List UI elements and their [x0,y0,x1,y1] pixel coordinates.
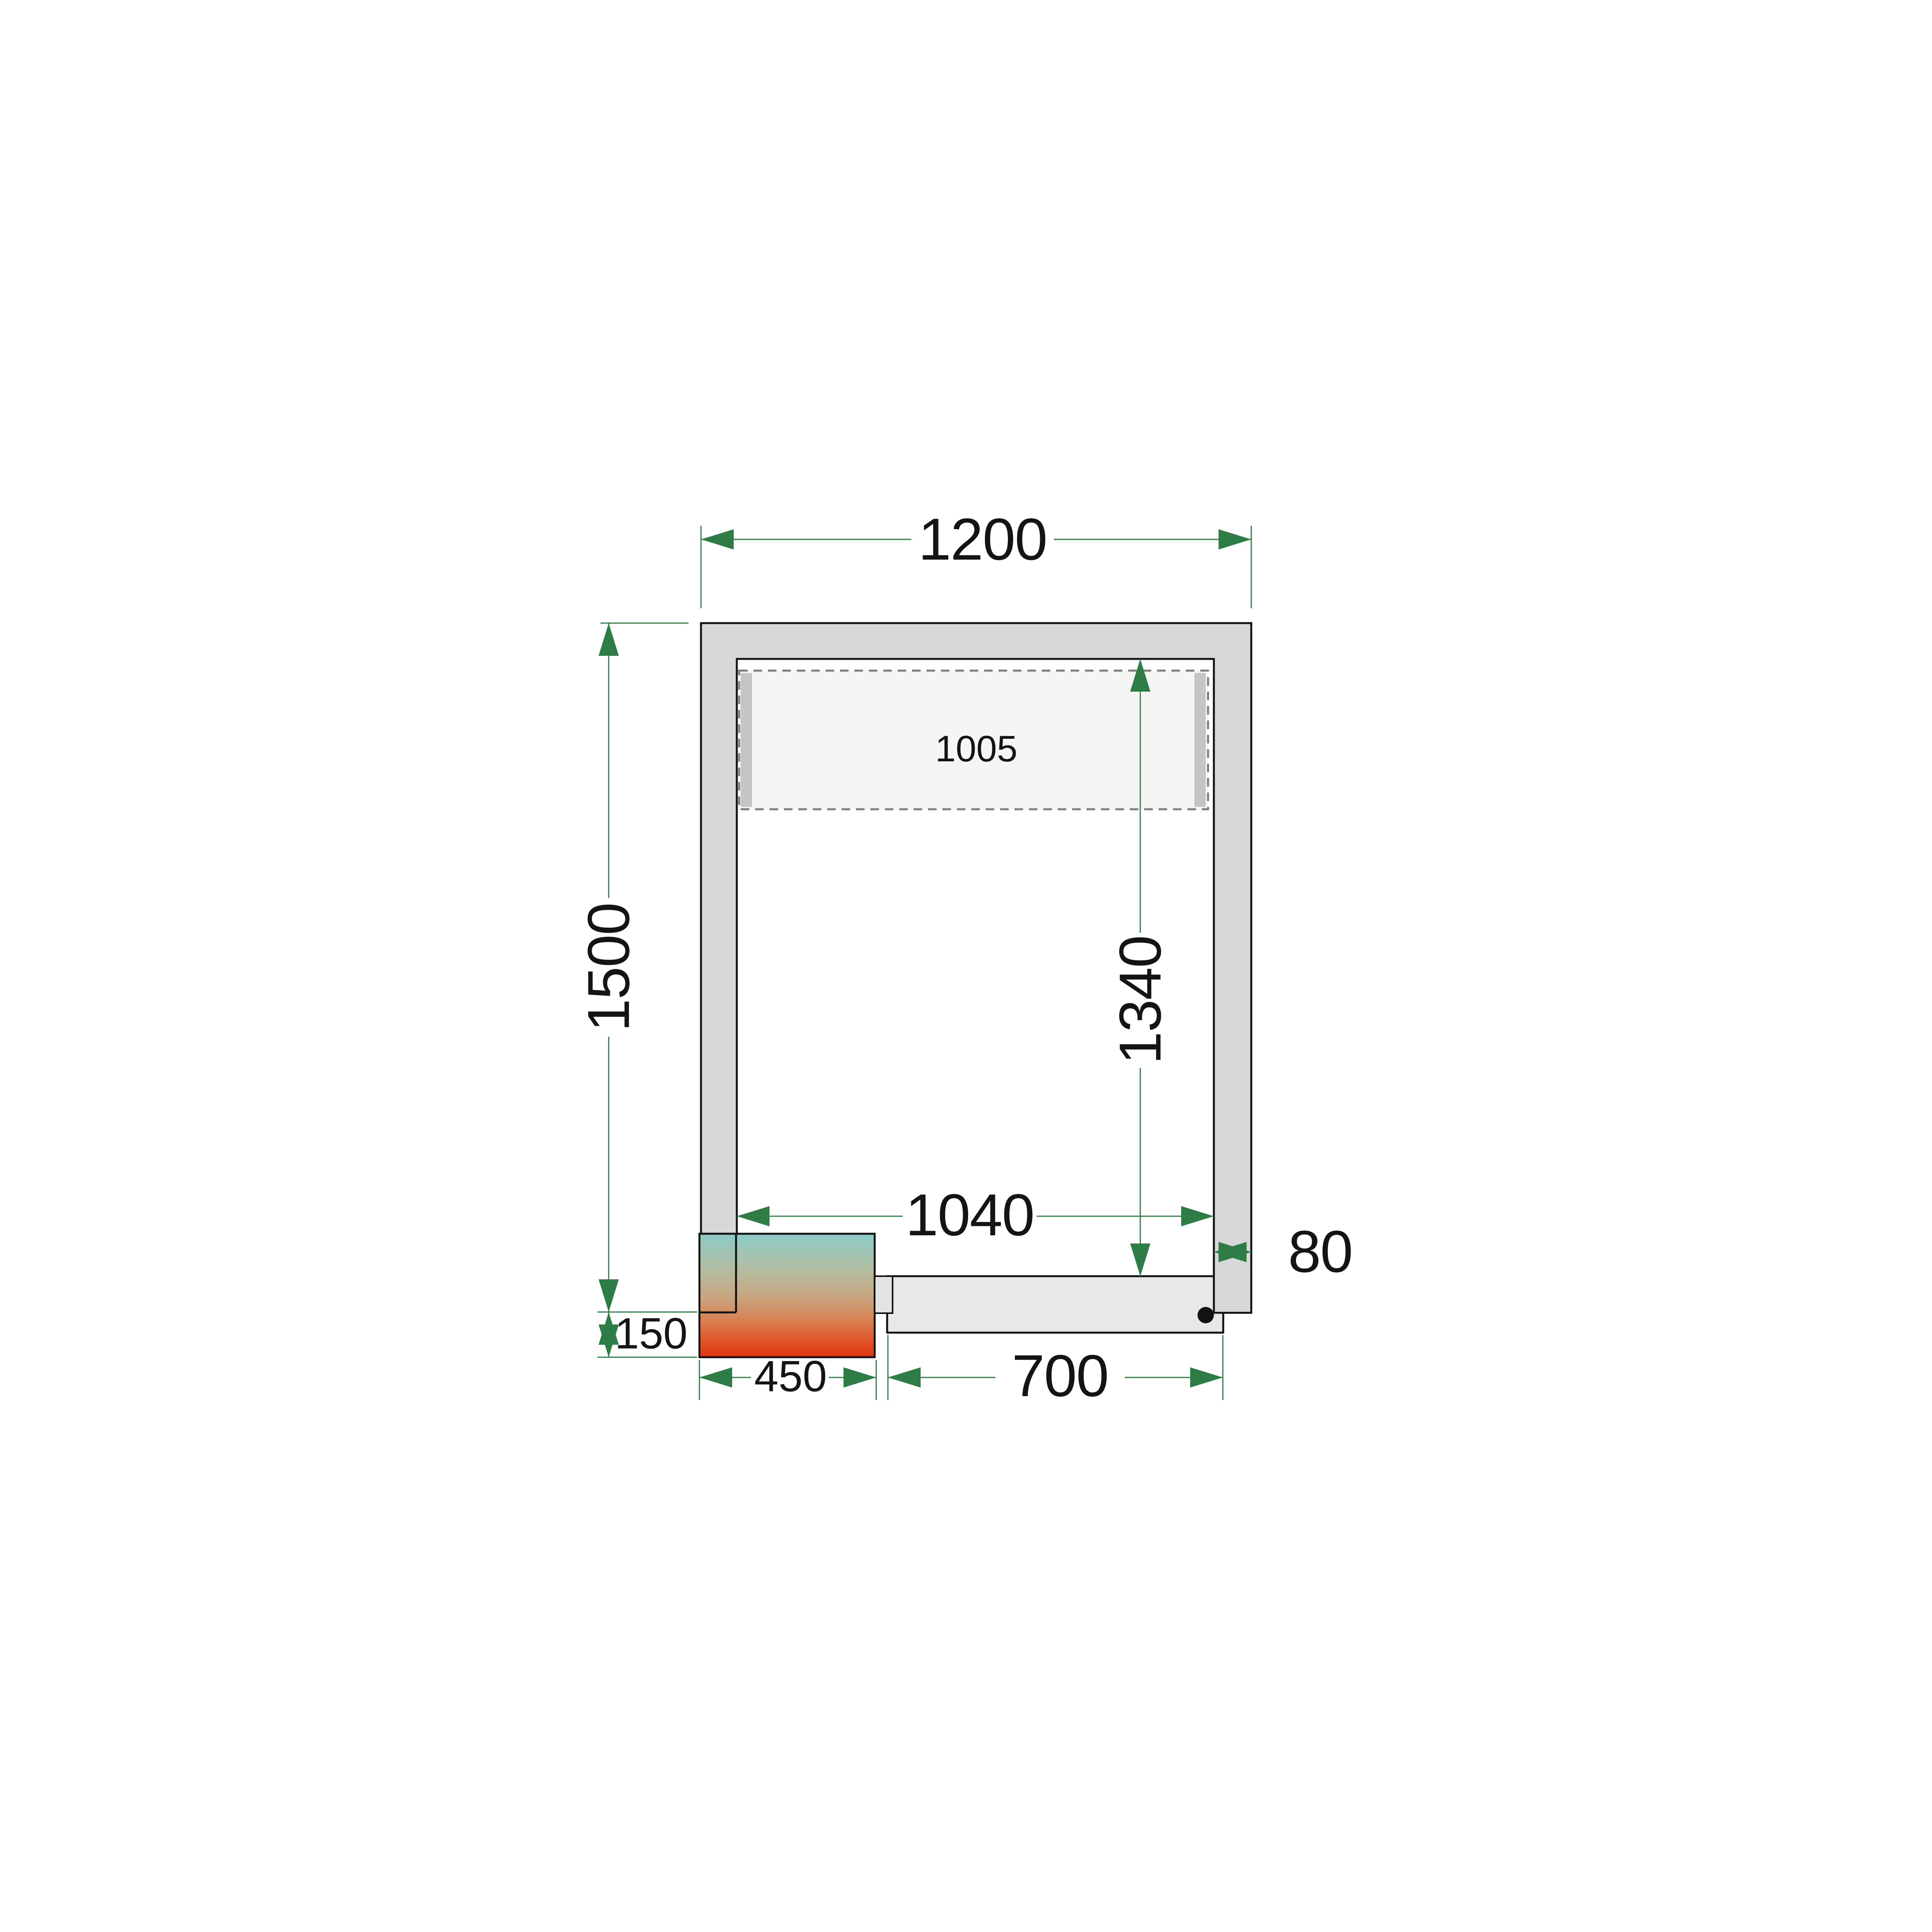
shelf-width-label: 1005 [935,728,1017,770]
door-width-label: 700 [1012,1343,1108,1409]
inner-width-label: 1040 [905,1182,1034,1248]
door-leaf [887,1276,1223,1333]
outer-width-label: 1200 [918,506,1047,572]
unit-width-label: 450 [754,1352,827,1401]
inner-depth-label: 1340 [1107,936,1173,1064]
outer-depth-label: 1500 [576,903,642,1032]
shelf-support-left [741,673,752,807]
canvas-background [0,0,1932,1932]
unit-overhang-label: 150 [615,1309,688,1358]
door-jamb [875,1276,893,1313]
drawing-canvas: 1005 [0,0,1932,1932]
wall-thickness-label: 80 [1288,1219,1352,1285]
floor-plan-svg: 1005 [0,0,1932,1932]
shelf-support-right [1194,673,1206,807]
door-hinge-dot-icon [1198,1307,1214,1323]
cooling-unit-gradient-block [699,1234,875,1357]
